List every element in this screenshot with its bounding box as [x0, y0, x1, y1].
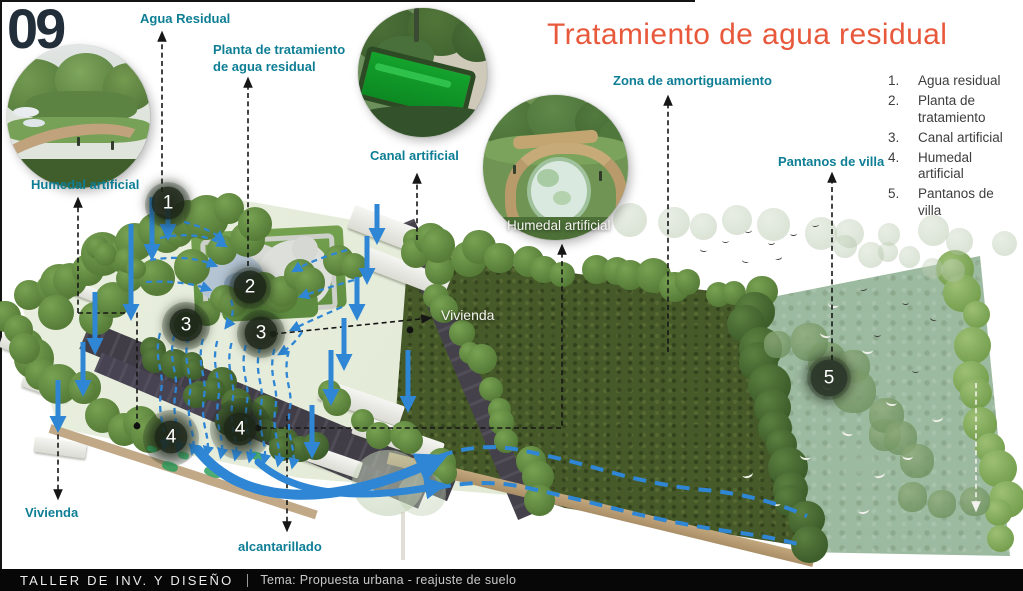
slide-canvas: 1 2 3 3 4 4 5 — [0, 0, 1023, 591]
plan-marker-3b: 3 — [245, 317, 278, 350]
callout-humedal-artificial-left: Humedal artificial — [31, 177, 139, 192]
photo-canal-artificial — [358, 8, 487, 137]
callout-canal-artificial: Canal artificial — [370, 148, 459, 163]
callout-agua-residual: Agua Residual — [140, 11, 230, 26]
footer-topic: Tema: Propuesta urbana - reajuste de sue… — [260, 573, 516, 587]
callout-zona-amortiguamiento: Zona de amortiguamiento — [613, 73, 772, 88]
callout-planta-tratamiento: Planta de tratamiento de agua residual — [213, 41, 345, 75]
footer-course-name: TALLER DE INV. Y DISEÑO — [20, 573, 233, 588]
plan-marker-5: 5 — [811, 360, 848, 397]
plan-marker-1: 1 — [152, 187, 185, 220]
plan-marker-4b: 4 — [224, 413, 257, 446]
callout-planta-line1: Planta de tratamiento — [213, 41, 345, 58]
callout-planta-line2: de agua residual — [213, 58, 345, 75]
plan-marker-2: 2 — [234, 271, 267, 304]
footer-divider — [247, 574, 248, 587]
callout-humedal-artificial-center: Humedal artificial — [507, 218, 611, 233]
plan-marker-3a: 3 — [170, 309, 203, 342]
callout-pantanos-de-villa: Pantanos de villa — [778, 154, 884, 169]
plan-marker-4a: 4 — [155, 421, 188, 454]
callout-vivienda-left: Vivienda — [25, 505, 78, 520]
photo-humedal-park — [7, 45, 150, 188]
footer-bar: TALLER DE INV. Y DISEÑO Tema: Propuesta … — [0, 569, 1023, 591]
flow-arrows-overlay — [0, 0, 1023, 591]
callout-vivienda-center: Vivienda — [441, 307, 494, 323]
callout-alcantarillado: alcantarillado — [238, 539, 322, 554]
